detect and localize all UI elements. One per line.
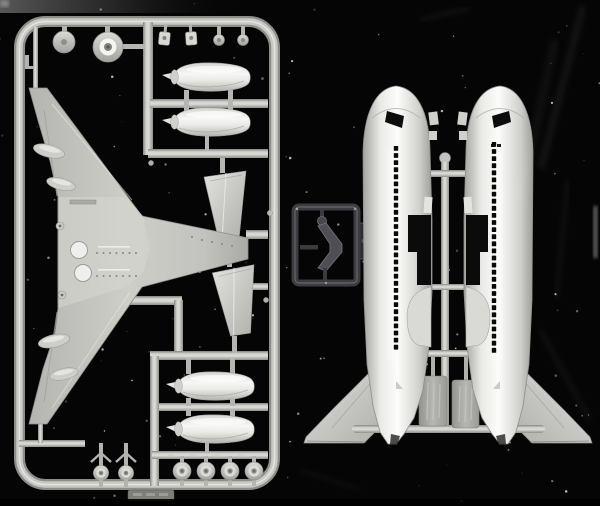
cabin-window <box>394 324 398 329</box>
dust-speck <box>101 360 102 361</box>
cabin-window <box>492 227 496 232</box>
cabin-window <box>492 163 496 168</box>
cabin-window <box>394 288 398 293</box>
cabin-window <box>492 249 496 254</box>
wheel-well <box>75 265 92 282</box>
cabin-window <box>492 234 496 239</box>
dust-speck <box>551 480 553 482</box>
dust-speck <box>583 53 584 54</box>
cabin-window <box>394 189 398 194</box>
dust-speck <box>146 420 148 422</box>
cabin-window <box>394 238 398 243</box>
cabin-window <box>492 320 496 325</box>
cabin-window <box>394 210 398 215</box>
cabin-window <box>492 291 496 296</box>
dust-speck <box>297 413 299 415</box>
dust-speck <box>261 77 264 80</box>
dust-speck <box>47 257 50 260</box>
cabin-window <box>492 241 496 246</box>
cabin-window <box>394 253 398 258</box>
cabin-window <box>394 295 398 300</box>
dust-speck <box>554 173 555 174</box>
sprue-photo-svg <box>0 0 600 506</box>
dust-speck <box>465 87 466 88</box>
cabin-window <box>394 309 398 314</box>
dust-speck <box>104 430 105 431</box>
dust-speck <box>184 374 186 376</box>
cabin-window <box>492 348 496 353</box>
dust-speck <box>337 223 339 225</box>
cabin-window <box>492 185 496 190</box>
dust-speck <box>291 60 293 62</box>
dust-speck <box>288 72 290 74</box>
cabin-window <box>492 277 496 282</box>
cabin-window <box>394 281 398 286</box>
cabin-window <box>492 199 496 204</box>
main-wheel <box>197 462 215 480</box>
cabin-window <box>492 170 496 175</box>
dust-speck <box>199 346 201 348</box>
dust-speck <box>54 199 56 201</box>
dust-speck <box>113 146 115 148</box>
dust-speck <box>172 318 173 319</box>
cabin-window <box>492 213 496 218</box>
dust-speck <box>289 441 291 443</box>
cabin-window <box>492 220 496 225</box>
dust-speck <box>508 449 510 451</box>
cabin-window <box>492 305 496 310</box>
dust-speck <box>581 415 583 417</box>
dust-speck <box>113 495 116 498</box>
dust-speck <box>566 25 568 27</box>
cabin-window <box>394 245 398 250</box>
dust-speck <box>121 121 122 122</box>
dust-speck <box>453 36 454 37</box>
dust-speck <box>65 400 67 402</box>
dust-speck <box>148 351 149 352</box>
dust-speck <box>551 102 553 104</box>
cabin-window <box>394 274 398 279</box>
cabin-window <box>492 156 496 161</box>
dust-speck <box>565 490 568 493</box>
dust-speck <box>575 405 577 407</box>
cabin-window <box>394 182 398 187</box>
dust-speck <box>119 95 120 96</box>
cabin-window <box>492 178 496 183</box>
cabin-window <box>492 270 496 275</box>
dust-speck <box>522 473 523 474</box>
dust-speck <box>441 110 443 112</box>
scanned-photo: Scanned photograph of airliner model kit… <box>0 0 600 506</box>
dust-speck <box>456 250 459 253</box>
cabin-window <box>492 298 496 303</box>
cabin-window <box>492 263 496 268</box>
dust-speck <box>127 331 128 332</box>
dust-speck <box>214 308 216 310</box>
cabin-window <box>492 284 496 289</box>
dust-speck <box>323 358 324 359</box>
cabin-window <box>394 345 398 350</box>
dust-speck <box>353 126 355 128</box>
cabin-window <box>394 203 398 208</box>
dust-speck <box>378 34 379 35</box>
cabin-window <box>492 192 496 197</box>
dust-speck <box>289 157 292 160</box>
dust-speck <box>204 213 206 215</box>
gear-leg-wheel <box>93 465 108 480</box>
dust-speck <box>558 31 560 33</box>
cabin-window <box>394 316 398 321</box>
dust-speck <box>576 310 578 312</box>
cabin-window <box>394 260 398 265</box>
cabin-window <box>394 302 398 307</box>
cabin-window <box>394 217 398 222</box>
dust-speck <box>33 328 34 329</box>
cabin-window <box>492 142 496 147</box>
cabin-window <box>492 206 496 211</box>
dust-speck <box>27 279 29 281</box>
main-wheel <box>221 462 239 480</box>
cabin-window <box>394 174 398 179</box>
dust-speck <box>286 156 287 157</box>
dust-speck <box>419 485 420 486</box>
dust-speck <box>555 374 558 377</box>
dust-speck <box>53 427 55 429</box>
cabin-window <box>394 196 398 201</box>
dust-speck <box>286 267 287 268</box>
dust-speck <box>233 57 235 59</box>
dust-speck <box>131 380 133 382</box>
cabin-window <box>492 334 496 339</box>
dust-speck <box>462 75 464 77</box>
dust-speck <box>557 309 559 311</box>
cabin-window <box>394 338 398 343</box>
cabin-window <box>394 267 398 272</box>
dust-speck <box>169 192 170 193</box>
cabin-window <box>394 167 398 172</box>
cabin-window <box>492 312 496 317</box>
dust-speck <box>164 163 166 165</box>
dust-speck <box>37 126 38 127</box>
dust-speck <box>159 435 161 437</box>
main-wheel <box>173 462 191 480</box>
cabin-window <box>492 327 496 332</box>
main-wheel <box>245 462 263 480</box>
cabin-window <box>492 256 496 261</box>
dust-speck <box>456 333 458 335</box>
wheel-well <box>71 242 88 259</box>
dust-speck <box>313 8 315 10</box>
dust-speck <box>306 191 308 193</box>
dust-speck <box>101 348 103 350</box>
dust-speck <box>93 497 95 499</box>
dust-speck <box>320 358 322 360</box>
cabin-window <box>492 149 496 154</box>
cabin-window <box>394 224 398 229</box>
cabin-window <box>394 146 398 151</box>
dust-speck <box>455 348 457 350</box>
cabin-window <box>394 331 398 336</box>
dust-speck <box>584 160 585 161</box>
dust-speck <box>446 465 447 466</box>
dust-speck <box>252 314 254 316</box>
cabin-window <box>394 153 398 158</box>
dust-speck <box>287 477 289 479</box>
dust-speck <box>175 445 176 446</box>
cabin-window <box>492 341 496 346</box>
cabin-window <box>394 231 398 236</box>
dust-speck <box>245 262 247 264</box>
dust-speck <box>111 76 114 79</box>
cabin-window <box>394 160 398 165</box>
dust-speck <box>1 134 3 136</box>
gear-leg-wheel <box>118 465 133 480</box>
